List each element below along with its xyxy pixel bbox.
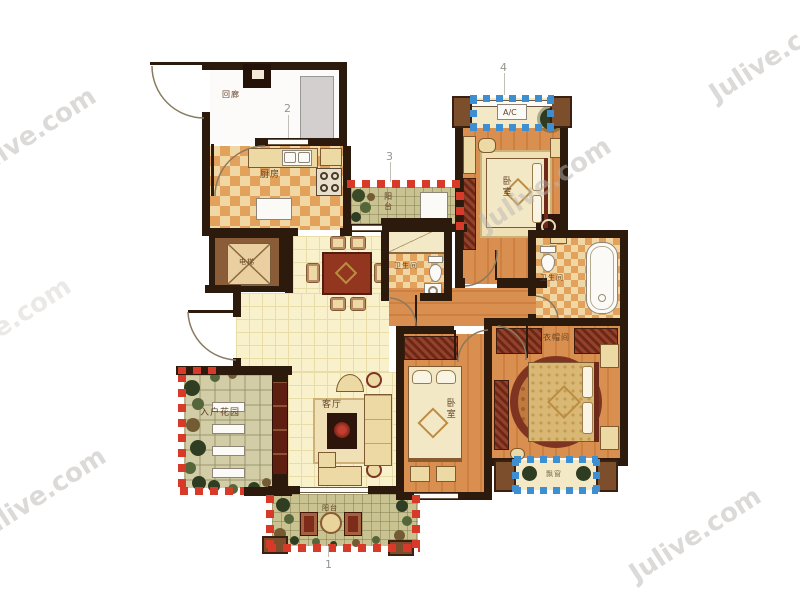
- open-edge-red-dash: [347, 180, 465, 188]
- garden-door-panel: [272, 380, 288, 476]
- door-arc: [534, 294, 560, 320]
- balcony-bottom-label: 阳台: [322, 504, 338, 512]
- living-slider-window: [300, 487, 368, 493]
- washer: [420, 192, 448, 220]
- plant: [351, 212, 361, 222]
- ottoman: [478, 138, 496, 153]
- leader-line: [288, 115, 289, 138]
- marker-3: 3: [386, 150, 393, 163]
- footboard: [408, 458, 462, 462]
- toilet-tank: [540, 246, 556, 253]
- headboard: [544, 158, 548, 228]
- table-medallion: [334, 422, 350, 438]
- dining-chair: [330, 297, 346, 311]
- pillow: [436, 370, 456, 384]
- patio-chair: [300, 512, 318, 536]
- burner: [320, 184, 328, 192]
- plant: [184, 380, 200, 396]
- wall: [202, 228, 298, 236]
- burner: [331, 184, 339, 192]
- headboard: [594, 362, 599, 442]
- door-arc: [463, 248, 499, 288]
- sink-bowl: [284, 152, 296, 163]
- closet-label: 衣帽间: [543, 333, 570, 343]
- side-table: [410, 466, 430, 482]
- wall: [272, 368, 288, 382]
- wall: [368, 486, 400, 494]
- dresser: [463, 136, 476, 174]
- plant: [402, 516, 412, 526]
- wall: [528, 230, 628, 238]
- bay-blue-dash: [512, 458, 519, 492]
- elevator-label: 电梯: [239, 258, 255, 266]
- nightstand: [600, 344, 619, 368]
- fridge: [256, 198, 292, 220]
- marker-4: 4: [500, 61, 507, 74]
- bedroom-top-label: 卧室: [500, 176, 511, 198]
- wall: [202, 62, 347, 70]
- wardrobe: [404, 336, 458, 360]
- door-arc: [456, 328, 490, 364]
- kitchen-label: 厨房: [260, 170, 280, 181]
- tv-bench: [318, 452, 336, 468]
- wall: [272, 474, 288, 488]
- corridor-label: 回廊: [222, 90, 240, 100]
- plant: [276, 498, 290, 512]
- pillow: [582, 402, 593, 434]
- watermark: Julive.com: [704, 1, 800, 108]
- balcony-slider-window: [352, 225, 382, 231]
- leader-line: [390, 162, 391, 182]
- plant: [576, 466, 591, 481]
- door-arc: [388, 296, 418, 328]
- wall: [528, 238, 536, 296]
- patio-table: [320, 512, 342, 534]
- planter: [212, 446, 245, 456]
- plant: [522, 466, 537, 481]
- sink-bowl: [298, 152, 310, 163]
- planter: [212, 424, 245, 434]
- marker-1: 1: [325, 558, 332, 571]
- pillow: [532, 195, 542, 223]
- open-edge-red-dash: [268, 544, 420, 552]
- open-edge-red-dash: [456, 185, 464, 230]
- marker-2: 2: [284, 102, 291, 115]
- round-side-table: [366, 372, 382, 388]
- burner: [331, 172, 339, 180]
- pillow: [582, 366, 593, 398]
- plant: [190, 440, 206, 456]
- watermark: Julive.com: [624, 481, 767, 588]
- watermark: Julive.com: [0, 81, 102, 188]
- utility-box-panel: [252, 70, 264, 79]
- duct-shaft: [300, 76, 334, 140]
- bay-window-label: 飘窗: [546, 470, 562, 478]
- watermark: Julive.com: [0, 271, 77, 378]
- shower-divider: [389, 252, 444, 254]
- wall: [381, 218, 452, 226]
- wall: [396, 326, 404, 500]
- leader-line: [504, 73, 505, 95]
- door-arc: [496, 324, 530, 362]
- bay-blue-dash: [593, 458, 600, 492]
- wardrobe: [463, 178, 476, 250]
- dining-chair: [330, 236, 346, 250]
- pier: [452, 96, 472, 128]
- plant: [360, 202, 371, 213]
- plant: [367, 193, 375, 201]
- kitchen-cabinet: [320, 148, 342, 166]
- wall: [205, 285, 241, 293]
- wall: [381, 218, 389, 301]
- open-edge-red-dash: [178, 375, 186, 487]
- pillow: [412, 370, 432, 384]
- open-edge-red-dash: [266, 494, 274, 548]
- dining-chair: [350, 236, 366, 250]
- wall: [339, 62, 347, 146]
- open-edge-red-dash: [180, 487, 244, 495]
- wall: [444, 218, 452, 301]
- burner: [320, 172, 328, 180]
- door-arc: [150, 64, 206, 120]
- wall: [420, 293, 452, 301]
- dresser: [494, 380, 509, 450]
- patio-chair: [344, 512, 362, 536]
- open-edge-red-dash: [178, 367, 222, 374]
- bay-blue-dash: [470, 124, 554, 131]
- nightstand: [600, 426, 619, 450]
- wall: [343, 146, 351, 232]
- tv-bench: [318, 466, 362, 486]
- kitchen-window: [268, 139, 308, 145]
- plant: [284, 514, 294, 524]
- bay-blue-dash: [470, 96, 477, 130]
- bay-blue-dash: [514, 487, 598, 494]
- leader-line: [328, 546, 329, 557]
- stove: [316, 168, 342, 196]
- bay-blue-dash: [547, 96, 554, 130]
- wall: [285, 232, 293, 293]
- plant: [396, 500, 408, 512]
- wall: [620, 326, 628, 466]
- bay-blue-dash: [470, 95, 554, 102]
- bedroom-mid-window: [414, 493, 458, 499]
- watermark: Julive.com: [0, 441, 112, 548]
- bathroom-mid-label: 卫生间: [394, 262, 418, 270]
- plant: [372, 536, 380, 544]
- bathtub-drain: [598, 294, 606, 302]
- entry-door-arc: [186, 312, 238, 364]
- dining-chair: [350, 297, 366, 311]
- balcony-top-label: 阳台: [383, 192, 393, 212]
- floor-plan: Julive.com Julive.com Julive.com Julive.…: [0, 0, 800, 600]
- garden-label: 入户花园: [200, 408, 240, 419]
- sofa: [364, 394, 392, 466]
- bathroom-master-label: 卫生间: [540, 274, 564, 282]
- planter: [212, 468, 245, 478]
- living-label: 客厅: [322, 400, 342, 411]
- hall-floor: [236, 293, 389, 372]
- side-table: [436, 466, 456, 482]
- door-arc: [213, 144, 267, 198]
- dining-chair: [306, 263, 320, 283]
- ac-unit-label: A/C: [503, 108, 517, 118]
- plant: [352, 189, 365, 202]
- pillow: [532, 163, 542, 191]
- toilet-tank: [428, 256, 443, 263]
- open-edge-red-dash: [412, 494, 420, 548]
- wall: [620, 230, 628, 326]
- bedroom-mid-label: 卧室: [444, 398, 455, 420]
- bay-blue-dash: [514, 456, 598, 463]
- wall: [202, 112, 210, 236]
- plant: [186, 418, 200, 432]
